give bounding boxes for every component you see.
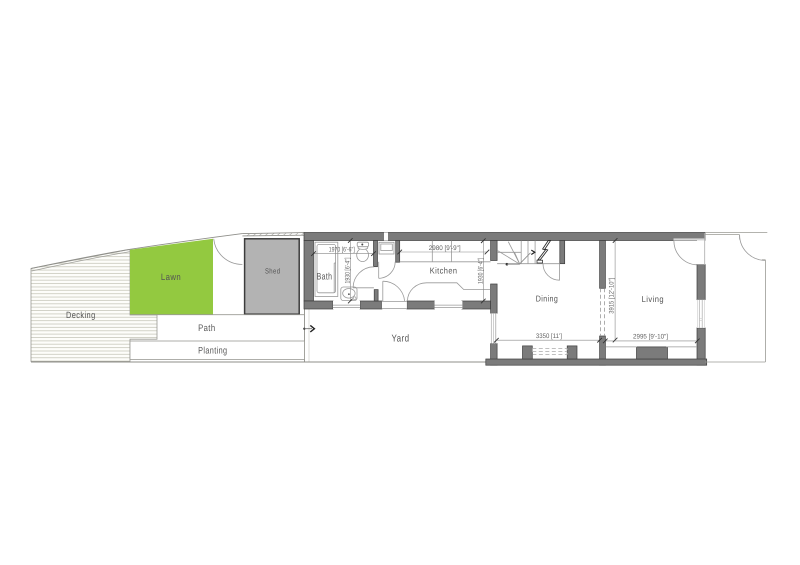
svg-text:Yard: Yard	[392, 334, 410, 345]
svg-text:3915 [12'-10"]: 3915 [12'-10"]	[608, 278, 615, 314]
svg-text:1930 [6'-4"]: 1930 [6'-4"]	[344, 257, 351, 283]
svg-text:1930 [6'-4"]: 1930 [6'-4"]	[477, 258, 484, 284]
svg-text:2995 [9'-10"]: 2995 [9'-10"]	[633, 333, 668, 340]
svg-text:1970 [6'-6"]: 1970 [6'-6"]	[329, 247, 355, 254]
svg-text:Living: Living	[642, 294, 664, 304]
svg-text:Kitchen: Kitchen	[430, 266, 458, 276]
svg-text:Planting: Planting	[198, 346, 227, 357]
svg-text:Decking: Decking	[66, 310, 96, 320]
svg-text:2980 [9'-9"]: 2980 [9'-9"]	[429, 245, 461, 252]
svg-text:Dining: Dining	[536, 294, 559, 304]
svg-text:Shed: Shed	[265, 266, 281, 275]
svg-text:Bath: Bath	[317, 271, 333, 282]
svg-text:3350 [11']: 3350 [11']	[536, 333, 562, 340]
svg-text:Lawn: Lawn	[161, 272, 181, 282]
svg-text:Path: Path	[198, 323, 215, 334]
